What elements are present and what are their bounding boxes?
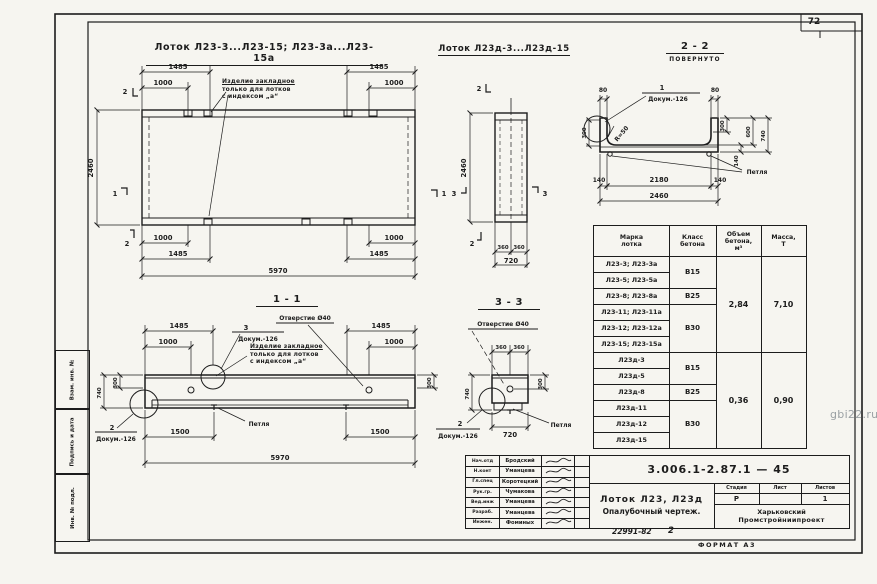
hole-label: Отверстие Ø40 <box>477 321 529 328</box>
signer-name: Бродский <box>499 456 541 466</box>
section-mark: 1 <box>442 190 447 198</box>
section-mark: 2 <box>125 240 130 248</box>
table-row-mark: Л23-11; Л23-11а <box>594 304 669 321</box>
dim-label: 740 <box>761 130 767 142</box>
table-row-mark: Л23-5; Л23-5а <box>594 272 669 289</box>
watermark: gbi22.ru <box>830 408 877 421</box>
section-mark: 2 <box>123 88 128 96</box>
table-row-mark: Л23д-15 <box>594 432 669 448</box>
section-mark: 3 <box>452 190 457 198</box>
signer-role: Н.конт <box>466 466 499 476</box>
dim-label: 740 <box>465 388 471 400</box>
footer-sheet-number: 2 <box>668 526 674 536</box>
section-mark: 3 <box>543 190 548 198</box>
section-1-1-labels: Отверстие Ø40 3 Докум.-126 1485 1000 148… <box>96 315 433 462</box>
callout-doc-ref: Докум.-126 <box>238 336 278 343</box>
section-mark: 2 <box>470 240 475 248</box>
dim-label: 2180 <box>650 176 669 184</box>
stage-value: Р <box>714 493 759 504</box>
dim-label: 1000 <box>385 234 404 242</box>
dim-label: 1000 <box>154 234 173 242</box>
table-row-mark: Л23-15; Л23-15а <box>594 336 669 353</box>
radius-label: R=50 <box>613 125 630 143</box>
note-line: Изделие закладное <box>250 343 323 351</box>
dim-label: 1000 <box>385 338 404 346</box>
dim-label: 1500 <box>371 428 390 436</box>
column-header-volume: Объем бетона, м³ <box>716 226 761 257</box>
signer-role: Гл.спец <box>466 477 499 487</box>
drawing-title-line2: Опалубочный чертеж. <box>603 507 701 516</box>
dim-label: 80 <box>711 87 719 94</box>
callout-number: 2 <box>458 420 463 428</box>
table-row-mark: Л23-12; Л23-12а <box>594 320 669 337</box>
loop-label: Петля <box>747 169 768 176</box>
end-view-labels: 2460 360 360 720 2 2 3 3 <box>452 85 548 265</box>
concrete-class: В30 <box>669 304 716 353</box>
concrete-class: В30 <box>669 400 716 448</box>
section-2-2-dimensions <box>586 93 772 206</box>
lotok-data-table: Марка лотка Класс бетона Объем бетона, м… <box>593 225 807 449</box>
document-number: 3.006.1-2.87.1 — 45 <box>589 456 849 483</box>
plan-view-title: Лоток Л23-3...Л23-15; Л23-3а...Л23-15а <box>146 42 382 66</box>
dim-label: 1485 <box>169 250 188 258</box>
dim-label: 2460 <box>87 158 95 177</box>
signer-name: Уманцева <box>499 497 541 507</box>
stamp-inv-podl: Инв. № подл. <box>55 473 90 542</box>
table-row-mark: Л23д-8 <box>594 384 669 401</box>
dim-label: 1485 <box>370 250 389 258</box>
s11-embed-note: Изделие закладное только для лотков с ин… <box>250 343 323 366</box>
note-line: с индексом „а“ <box>222 93 295 101</box>
signer-role: Вед.инж <box>466 497 499 507</box>
dim-label: 140 <box>593 177 606 184</box>
drawing-sheet: 1485 1000 1485 1000 2460 1000 1485 1000 … <box>0 0 877 584</box>
stamp-label: Инв. № подл. <box>70 487 76 529</box>
dim-label: 360 <box>497 245 509 251</box>
dim-label: 300 <box>720 120 726 132</box>
callout-doc-ref: Докум.-126 <box>438 433 478 440</box>
loop-label: Петля <box>249 421 270 428</box>
dim-label: 5970 <box>271 454 290 462</box>
concrete-class: В25 <box>669 384 716 401</box>
signature-marks <box>546 458 571 524</box>
stamp-vzam-inv: Взам. инв. № <box>55 350 90 410</box>
dim-label: 720 <box>504 257 518 265</box>
note-line: только для лотков <box>250 351 323 359</box>
dim-label: 300 <box>427 377 433 389</box>
stamp-label: Подпись и дата <box>70 417 76 466</box>
callout-number: 3 <box>244 324 249 332</box>
table-row-mark: Л23д-3 <box>594 352 669 369</box>
note-line: только для лотков <box>222 86 295 94</box>
signer-role: Рук.гр. <box>466 487 499 497</box>
signer-name: Уманцева <box>499 466 541 476</box>
column-header-mark: Марка лотка <box>594 226 669 257</box>
dim-label: 720 <box>503 431 517 439</box>
dim-label: 1000 <box>159 338 178 346</box>
section-mark: 2 <box>477 85 482 93</box>
concrete-class: В15 <box>669 352 716 385</box>
concrete-class: В15 <box>669 256 716 289</box>
drawing-title-line1: Лоток Л23, Л23д <box>600 495 703 505</box>
callout-number: 1 <box>660 84 665 92</box>
dim-label: 5970 <box>269 267 288 275</box>
item-mass: 7,10 <box>761 256 806 353</box>
sheets-value: 1 <box>801 493 849 504</box>
dim-label: 1485 <box>372 322 391 330</box>
note-line: Изделие закладное <box>222 78 295 86</box>
signer-role: Нач.отд <box>466 456 499 466</box>
sheet-header: Лист <box>759 483 801 493</box>
loop-label: Петля <box>551 422 572 429</box>
table-row-mark: Л23-3; Л23-3а <box>594 256 669 273</box>
note-line: с индексом „а“ <box>250 358 323 366</box>
section-3-3-labels: Отверстие Ø40 360 360 740 300 720 2 Доку… <box>438 321 571 440</box>
hole-label: Отверстие Ø40 <box>279 315 331 322</box>
dim-label: 740 <box>97 387 103 399</box>
dim-label: 140 <box>714 177 727 184</box>
section-mark: 1 <box>113 190 118 198</box>
stamp-label: Взам. инв. № <box>70 360 76 401</box>
dim-label: 1500 <box>171 428 190 436</box>
dim-label: 300 <box>582 127 588 139</box>
dim-label: 1000 <box>385 79 404 87</box>
organization: Харьковский Промстройниипроект <box>714 504 849 528</box>
signer-name: Фоминых <box>499 518 541 528</box>
table-row-mark: Л23д-5 <box>594 368 669 385</box>
sheet-value <box>759 493 801 504</box>
stamp-podpis-data: Подпись и дата <box>55 408 90 475</box>
dim-label: 2460 <box>460 158 468 177</box>
organization-line2: Промстройниипроект <box>738 516 824 524</box>
dim-label: 1485 <box>170 322 189 330</box>
callout-number: 2 <box>110 424 115 432</box>
dim-label: 300 <box>538 378 544 390</box>
dim-label: 2460 <box>650 192 669 200</box>
plan-view-linework <box>142 110 415 225</box>
signature-column <box>542 456 574 528</box>
table-row-mark: Л23-8; Л23-8а <box>594 288 669 305</box>
dim-label: 360 <box>513 345 525 351</box>
footer-doc-number: 22991-82 <box>612 527 652 536</box>
section-3-3-linework <box>479 375 528 414</box>
section-2-2-title: 2 - 2 <box>666 41 724 54</box>
dim-label: 80 <box>599 87 607 94</box>
sheet-number: 72 <box>801 17 827 27</box>
table-row-mark: Л23д-11 <box>594 400 669 417</box>
concrete-class: В25 <box>669 288 716 305</box>
dim-label: 140 <box>734 155 740 167</box>
column-header-mass: Масса, Т <box>761 226 806 257</box>
concrete-volume: 2,84 <box>716 256 761 353</box>
column-header-class: Класс бетона <box>669 226 716 257</box>
table-row-mark: Л23д-12 <box>594 416 669 433</box>
dim-label: 300 <box>113 377 119 389</box>
item-mass: 0,90 <box>761 352 806 448</box>
stage-header: Стадия <box>714 483 759 493</box>
signer-name: Коротецкий <box>499 477 541 487</box>
dim-label: 360 <box>513 245 525 251</box>
signer-role: Инжен. <box>466 518 499 528</box>
section-2-2-linework <box>584 116 718 156</box>
dim-label: 360 <box>495 345 507 351</box>
end-view-linework <box>495 98 527 225</box>
format-label: ФОРМАТ А3 <box>698 541 756 549</box>
plan-embed-note: Изделие закладное только для лотков с ин… <box>222 78 295 101</box>
callout-doc-ref: Докум.-126 <box>648 96 688 103</box>
callout-doc-ref: Докум.-126 <box>96 436 136 443</box>
signer-name: Уманцева <box>499 507 541 517</box>
section-1-1-title: 1 - 1 <box>256 294 318 307</box>
section-3-3-title: 3 - 3 <box>478 297 540 310</box>
section-2-2-labels: 80 80 1 Докум.-126 R=50 300 300 140 600 … <box>582 84 768 200</box>
dim-label: 1000 <box>154 79 173 87</box>
drawing-title: Лоток Л23, Л23д Опалубочный чертеж. <box>589 483 714 528</box>
title-block: Нач.отд Бродский Н.конт Уманцева Гл.спец… <box>465 455 850 529</box>
section-2-2-subtitle: ПОВЕРНУТО <box>660 57 730 63</box>
organization-line1: Харьковский <box>757 508 806 516</box>
concrete-volume: 0,36 <box>716 352 761 448</box>
signer-role: Разраб. <box>466 507 499 517</box>
plan-d-title: Лоток Л23д-3...Л23д-15 <box>438 44 570 56</box>
dim-label: 600 <box>746 126 752 138</box>
signer-name: Чумакова <box>499 487 541 497</box>
sheets-header: Листов <box>801 483 849 493</box>
section-1-1-linework <box>130 365 415 418</box>
